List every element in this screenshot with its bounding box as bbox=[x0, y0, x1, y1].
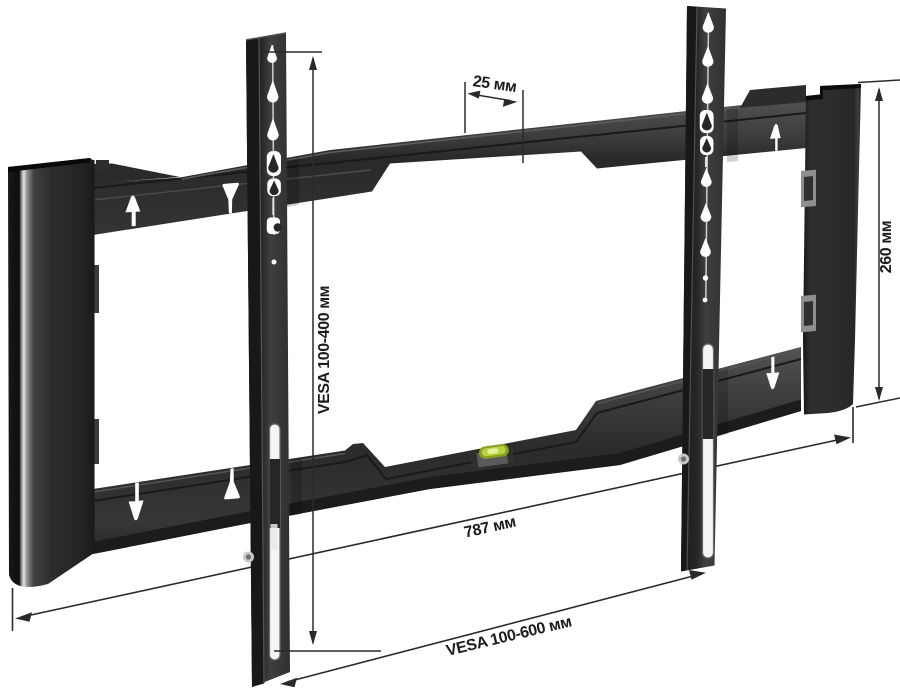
svg-text:260 мм: 260 мм bbox=[878, 221, 895, 273]
svg-text:VESA 100-400 мм: VESA 100-400 мм bbox=[316, 286, 333, 414]
